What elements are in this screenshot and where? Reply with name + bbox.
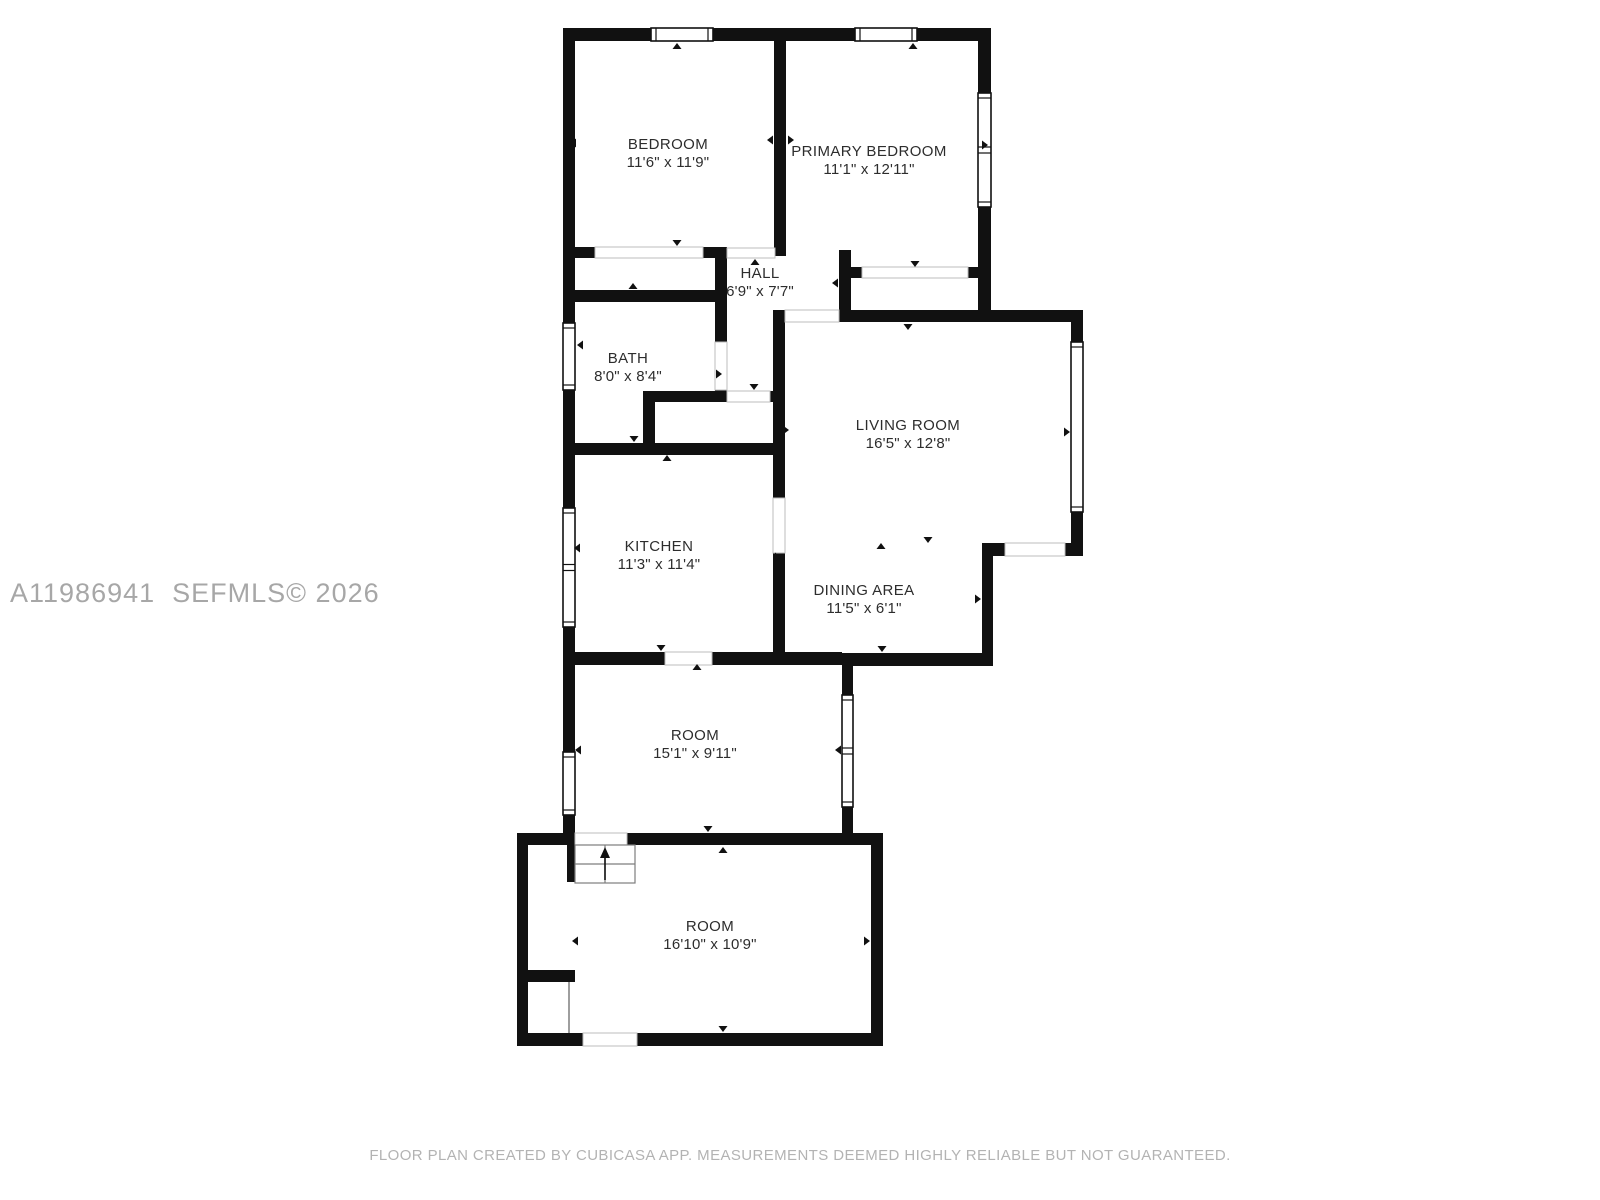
down-direction-marker-icon [657,645,666,651]
window [651,28,713,41]
down-direction-marker-icon [704,826,713,832]
door-opening [773,498,785,553]
room-label-room-lower: ROOM [686,918,734,935]
door-opening [1005,543,1065,556]
left-direction-marker-icon [767,136,773,145]
door-opening [595,247,703,258]
up-direction-marker-icon [877,543,886,549]
window [978,93,991,207]
mls-watermark: A11986941 SEFMLS© 2026 [10,578,380,609]
room-label-kitchen: KITCHEN [625,538,694,555]
window [563,508,575,627]
room-dims-dining-area: 11'5" x 6'1" [826,600,901,617]
wall [839,250,851,312]
room-label-bedroom: BEDROOM [628,136,708,153]
room-label-living-room: LIVING ROOM [856,417,960,434]
room-dims-living-room: 16'5" x 12'8" [866,435,951,452]
window [563,323,575,390]
down-direction-marker-icon [911,261,920,267]
wall [517,833,528,1046]
room-dims-room-lower: 16'10" x 10'9" [663,936,756,953]
left-direction-marker-icon [575,746,581,755]
door-opening [727,391,770,402]
left-direction-marker-icon [577,341,583,350]
wall [528,970,575,982]
wall [774,28,786,256]
wall [773,310,785,498]
left-direction-marker-icon [835,746,841,755]
up-direction-marker-icon [719,847,728,853]
down-direction-marker-icon [673,240,682,246]
room-dims-bath: 8'0" x 8'4" [594,368,662,385]
room-label-primary-bedroom: PRIMARY BEDROOM [791,143,946,160]
door-opening [715,342,727,390]
room-dims-kitchen: 11'3" x 11'4" [618,556,701,573]
down-direction-marker-icon [630,436,639,442]
down-direction-marker-icon [719,1026,728,1032]
wall [563,290,717,302]
window [842,695,853,807]
down-direction-marker-icon [904,324,913,330]
up-direction-marker-icon [909,43,918,49]
wall [982,543,993,666]
door-opening [665,652,712,665]
room-label-room-upper: ROOM [671,727,719,744]
left-direction-marker-icon [832,279,838,288]
door-opening [727,248,775,258]
right-direction-marker-icon [783,426,789,435]
right-direction-marker-icon [864,937,870,946]
window [855,28,917,41]
down-direction-marker-icon [750,384,759,390]
floorplan-page: BEDROOM11'6" x 11'9"PRIMARY BEDROOM11'1"… [0,0,1600,1200]
right-direction-marker-icon [1064,428,1070,437]
room-dims-bedroom: 11'6" x 11'9" [627,154,710,171]
wall [871,833,883,1046]
up-direction-marker-icon [663,455,672,461]
wall [842,653,993,666]
wall [643,391,727,402]
wall [563,443,785,455]
down-direction-marker-icon [878,646,887,652]
door-opening [583,1033,637,1046]
disclaimer-text: FLOOR PLAN CREATED BY CUBICASA APP. MEAS… [0,1147,1600,1164]
door-opening [862,267,968,278]
room-dims-room-upper: 15'1" x 9'11" [653,745,737,762]
wall [517,1033,883,1046]
wall [773,553,785,663]
door-opening [785,310,839,322]
room-dims-primary-bedroom: 11'1" x 12'11" [823,161,914,178]
left-direction-marker-icon [572,937,578,946]
room-label-hall: HALL [740,265,779,282]
window [1071,342,1083,512]
down-direction-marker-icon [924,537,933,543]
room-dims-hall: 6'9" x 7'7" [726,283,794,300]
room-label-bath: BATH [608,350,649,367]
door-opening [575,833,627,845]
up-direction-marker-icon [629,283,638,289]
right-direction-marker-icon [975,595,981,604]
wall [839,310,1083,322]
room-label-dining-area: DINING AREA [813,582,914,599]
wall [517,833,883,845]
up-direction-marker-icon [673,43,682,49]
window [563,752,575,815]
